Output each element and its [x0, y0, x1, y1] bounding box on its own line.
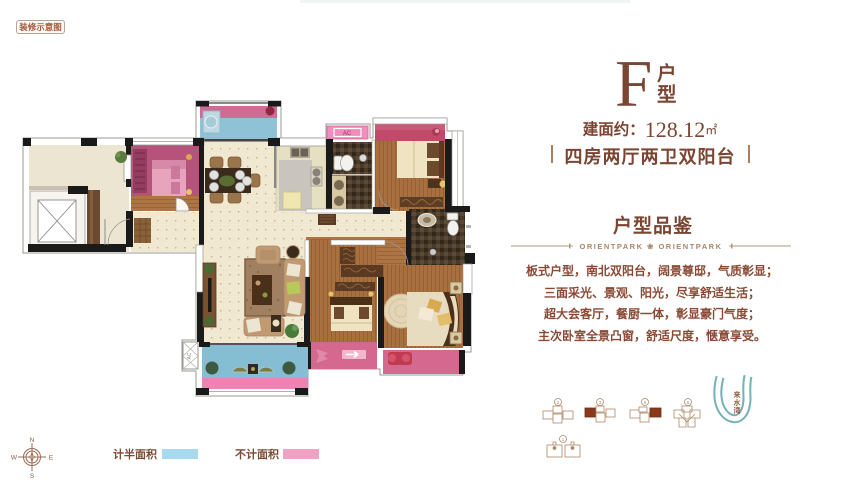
svg-text:AC: AC: [343, 131, 352, 137]
svg-text:ORIENTPARK ❀ ORIENTPARK: ORIENTPARK ❀ ORIENTPARK: [579, 242, 722, 251]
svg-text:W: W: [11, 455, 18, 462]
svg-text:来水湾: 来水湾: [733, 390, 742, 415]
svg-text:S: S: [30, 473, 35, 480]
svg-text:AC: AC: [187, 352, 193, 359]
svg-text:N: N: [30, 437, 35, 444]
svg-text:E: E: [49, 455, 54, 462]
